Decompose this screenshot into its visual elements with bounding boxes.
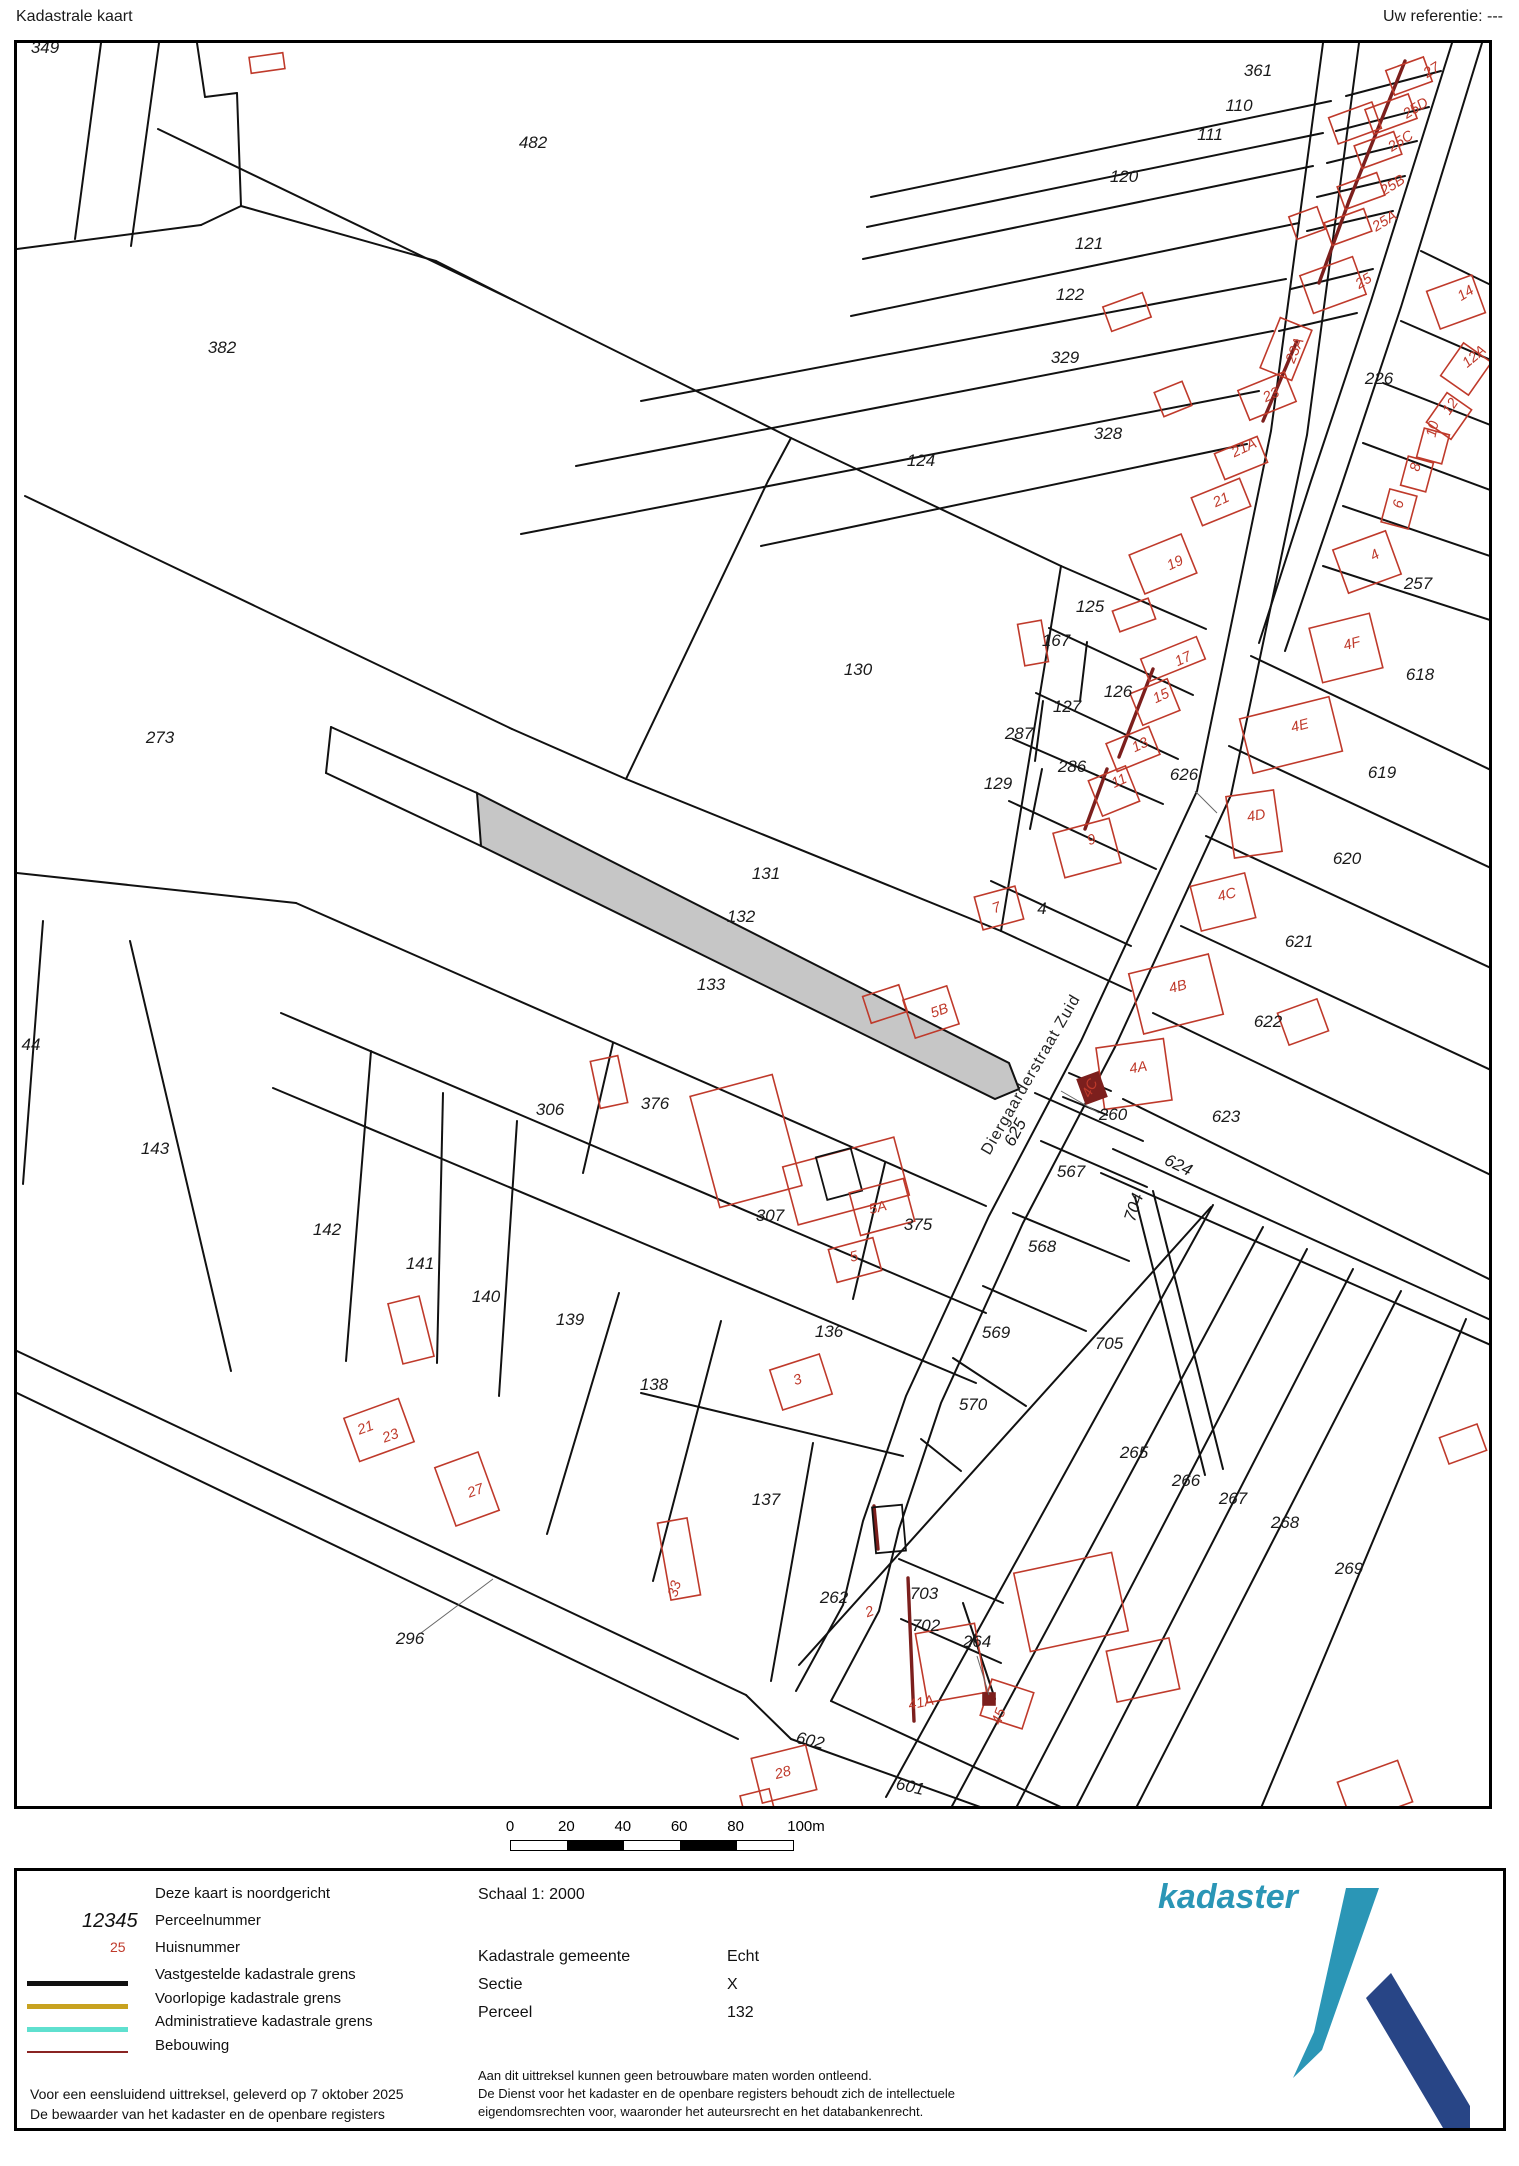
parcel-boundary — [205, 93, 237, 97]
parcel-boundary — [831, 1701, 1063, 1806]
perceel-label: Perceel — [478, 2004, 532, 2022]
parcel-label-382: 382 — [208, 338, 237, 357]
parcel-label-129: 129 — [984, 774, 1013, 793]
disclaimer-line-1: Aan dit uittreksel kunnen geen betrouwba… — [478, 2068, 872, 2083]
parcel-label-273: 273 — [145, 728, 175, 747]
parcel-label-121: 121 — [1075, 234, 1103, 253]
building-outline — [740, 1789, 774, 1806]
parcel-boundary — [241, 206, 436, 261]
scale-tick-20: 20 — [558, 1818, 575, 1835]
parcel-boundary — [626, 481, 768, 779]
scale-segment — [624, 1841, 680, 1850]
parcel-boundary — [437, 1093, 443, 1363]
parcel-label-126: 126 — [1104, 682, 1133, 701]
parcel-label-569: 569 — [982, 1323, 1011, 1342]
highlighted-parcel-132[interactable] — [477, 793, 1019, 1099]
parcel-boundary — [17, 1351, 746, 1695]
parcel-label-623: 623 — [1212, 1107, 1241, 1126]
scale-label: Schaal 1: 2000 — [478, 1886, 585, 1904]
parcel-boundary — [296, 903, 986, 1206]
house-number-7: 7 — [990, 899, 1004, 917]
legend-item-perceelnummer: Perceelnummer — [155, 1912, 261, 1929]
gemeente-value: Echt — [727, 1948, 759, 1966]
house-number-4D: 4D — [1246, 807, 1267, 826]
parcel-boundary — [653, 1321, 721, 1581]
parcel-label-328: 328 — [1094, 424, 1123, 443]
scale-segment — [680, 1841, 736, 1850]
building-outline — [1106, 1638, 1179, 1702]
house-number-33: 33 — [665, 1579, 685, 1599]
house-number-4C: 4C — [1216, 885, 1239, 905]
disclaimer-line-2: De Dienst voor het kadaster en de openba… — [478, 2086, 955, 2101]
parcel-label-44: 44 — [22, 1035, 41, 1054]
parcel-label-267: 267 — [1218, 1489, 1248, 1508]
parcel-label-264: 264 — [962, 1632, 991, 1651]
parcel-label-257: 257 — [1403, 574, 1433, 593]
house-number-3: 3 — [791, 1371, 804, 1389]
parcel-label-167: 167 — [1042, 631, 1071, 650]
parcel-boundary — [17, 1393, 738, 1739]
parcel-label-141: 141 — [406, 1254, 434, 1273]
reference-label: Uw referentie: --- — [1383, 8, 1503, 26]
parcel-label-142: 142 — [313, 1220, 342, 1239]
parcel-label-620: 620 — [1333, 849, 1362, 868]
parcel-label-143: 143 — [141, 1139, 170, 1158]
legend-line-vastgesteld — [27, 1981, 128, 1986]
parcel-boundary — [17, 873, 296, 903]
parcel-label-601: 601 — [894, 1774, 926, 1799]
parcel-label-286: 286 — [1057, 757, 1087, 776]
delivery-line: Voor een eensluidend uittreksel, gelever… — [30, 2086, 404, 2102]
parcel-label-133: 133 — [697, 975, 726, 994]
parcel-label-260: 260 — [1098, 1105, 1128, 1124]
house-number-25A: 25A — [1369, 208, 1400, 236]
building-outline — [1333, 531, 1401, 593]
parcel-boundary — [158, 129, 515, 301]
scale-tick-0: 0 — [506, 1818, 514, 1835]
cadastral-map[interactable]: 3494823821243611101111201211223293282262… — [17, 43, 1489, 1806]
parcel-label-138: 138 — [640, 1375, 669, 1394]
scale-tick-80: 80 — [727, 1818, 744, 1835]
house-number-4A: 4A — [1128, 1059, 1148, 1078]
house-number-4F: 4F — [1342, 634, 1364, 654]
building-outline — [1112, 598, 1155, 632]
parcel-boundary — [1261, 1319, 1466, 1806]
scale-segment — [737, 1841, 793, 1850]
house-number-2: 2 — [862, 1603, 876, 1621]
house-number-41A: 41A — [907, 1693, 936, 1714]
parcel-boundary — [1363, 443, 1489, 491]
parcel-boundary — [512, 729, 626, 779]
parcel-boundary — [75, 43, 101, 239]
parcel-label-307: 307 — [756, 1206, 785, 1225]
legend-line-administratief — [27, 2027, 128, 2032]
parcel-boundary — [1001, 931, 1131, 991]
parcel-boundary — [17, 225, 201, 249]
parcel-boundary — [1153, 1013, 1489, 1176]
parcel-label-131: 131 — [752, 864, 780, 883]
parcel-boundary — [326, 727, 331, 773]
house-number-21: 21 — [354, 1418, 376, 1439]
parcel-boundary — [1009, 801, 1156, 869]
house-number-23: 23 — [379, 1426, 401, 1447]
parcel-label-226: 226 — [1364, 369, 1394, 388]
sectie-value: X — [727, 1976, 738, 1994]
parcel-label-268: 268 — [1270, 1513, 1300, 1532]
parcel-boundary — [746, 1695, 791, 1739]
page-title: Kadastrale kaart — [16, 8, 133, 26]
bebouwing-boundary — [1319, 201, 1349, 283]
gemeente-label: Kadastrale gemeente — [478, 1948, 630, 1966]
parcel-boundary — [1001, 566, 1061, 931]
kadastrale-kaart-page: Kadastrale kaart Uw referentie: --- 3494… — [0, 0, 1519, 2166]
parcel-label-136: 136 — [815, 1322, 844, 1341]
scale-segment — [567, 1841, 623, 1850]
house-number-5B: 5B — [929, 1001, 951, 1022]
house-number-17: 17 — [1173, 648, 1195, 670]
building-outline — [1277, 999, 1328, 1045]
building-outline — [388, 1296, 434, 1364]
parcel-label-482: 482 — [519, 133, 548, 152]
legend-item-vastgesteld: Vastgestelde kadastrale grens — [155, 1966, 356, 1983]
legend-line-bebouwing — [27, 2051, 128, 2053]
scale-tick-40: 40 — [614, 1818, 631, 1835]
scale-bar-ruler — [510, 1840, 794, 1851]
building-outline — [1401, 456, 1434, 492]
scale-segment — [511, 1841, 567, 1850]
house-number-14: 14 — [1455, 283, 1477, 305]
house-number-6: 6 — [1390, 498, 1408, 510]
parcel-label-622: 622 — [1254, 1012, 1283, 1031]
parcel-label-361: 361 — [1244, 61, 1272, 80]
parcel-label-110: 110 — [1225, 96, 1253, 115]
house-number-5: 5 — [848, 1248, 861, 1266]
house-number-19: 19 — [1165, 553, 1186, 574]
building-outline — [690, 1074, 802, 1207]
legend-item-bebouwing: Bebouwing — [155, 2037, 229, 2054]
parcel-label-567: 567 — [1057, 1162, 1086, 1181]
house-number-15: 15 — [1151, 685, 1173, 707]
road-edge — [1259, 43, 1452, 643]
parcel-label-140: 140 — [472, 1287, 501, 1306]
parcel-boundary — [1030, 769, 1042, 829]
parcel-label-262: 262 — [819, 1588, 849, 1607]
parcel-label-349: 349 — [31, 43, 60, 57]
parcel-label-306: 306 — [536, 1100, 565, 1119]
parcel-label-376: 376 — [641, 1094, 670, 1113]
parcel-boundary — [641, 1393, 903, 1456]
house-number-4B: 4B — [1167, 977, 1189, 997]
legend-parcelnumber-sample: 12345 — [82, 1910, 138, 1933]
parcel-label-4: 4 — [1037, 899, 1046, 918]
parcel-boundary — [1101, 1173, 1489, 1346]
parcel-label-570: 570 — [959, 1395, 988, 1414]
parcel-label-705: 705 — [1095, 1334, 1124, 1353]
parcel-boundary — [871, 101, 1331, 197]
parcel-label-602: 602 — [794, 1728, 826, 1753]
parcel-label-124: 124 — [907, 451, 935, 470]
scale-tick-60: 60 — [671, 1818, 688, 1835]
parcel-label-127: 127 — [1053, 697, 1082, 716]
legend-item-voorlopig: Voorlopige kadastrale grens — [155, 1990, 341, 2007]
parcel-boundary — [499, 1121, 517, 1396]
parcel-label-704: 704 — [1120, 1191, 1147, 1224]
parcel-label-125: 125 — [1076, 597, 1105, 616]
parcel-boundary — [576, 331, 1273, 466]
parcel-label-139: 139 — [556, 1310, 585, 1329]
building-outline — [344, 1398, 414, 1461]
parcel-boundary — [1343, 506, 1489, 557]
parcel-label-329: 329 — [1051, 348, 1080, 367]
legend-line-voorlopig — [27, 2004, 128, 2009]
house-number-8: 8 — [1407, 462, 1424, 473]
parcel-boundary — [771, 1443, 813, 1681]
house-number-21A: 21A — [1228, 436, 1259, 462]
perceel-value: 132 — [727, 2004, 754, 2022]
building-outline — [1154, 381, 1192, 416]
parcel-boundary — [331, 727, 477, 793]
parcel-label-296: 296 — [395, 1629, 425, 1648]
parcel-boundary — [1080, 642, 1087, 701]
parcel-label-265: 265 — [1119, 1443, 1149, 1462]
building-outline — [783, 1137, 910, 1225]
map-frame: 3494823821243611101111201211223293282262… — [14, 40, 1492, 1809]
parcel-boundary — [131, 43, 159, 246]
road-edge — [831, 43, 1359, 1701]
parcel-label-266: 266 — [1171, 1471, 1201, 1490]
building-outline — [1427, 275, 1486, 329]
parcel-boundary — [201, 206, 241, 225]
house-number-4: 4 — [1368, 547, 1383, 565]
legend-item-noordgericht: Deze kaart is noordgericht — [155, 1885, 330, 1902]
parcel-label-624: 624 — [1161, 1150, 1195, 1180]
parcel-label-137: 137 — [752, 1490, 781, 1509]
parcel-label-120: 120 — [1110, 167, 1139, 186]
parcel-label-130: 130 — [844, 660, 873, 679]
parcel-label-132: 132 — [727, 907, 756, 926]
parcel-label-111: 111 — [1197, 125, 1223, 144]
parcel-boundary — [1016, 1249, 1307, 1806]
parcel-boundary — [583, 1043, 613, 1173]
parcel-label-568: 568 — [1028, 1237, 1057, 1256]
legend-housenumber-sample: 25 — [110, 1939, 126, 1955]
parcel-boundary — [1123, 1099, 1489, 1281]
building-outline — [249, 53, 285, 74]
building-outline — [1439, 1424, 1486, 1464]
parcel-label-287: 287 — [1004, 724, 1034, 743]
parcel-boundary — [515, 301, 791, 438]
sectie-label: Sectie — [478, 1976, 522, 1994]
building-outline — [1014, 1552, 1128, 1651]
parcel-label-122: 122 — [1056, 285, 1085, 304]
house-number-4E: 4E — [1289, 716, 1311, 736]
house-number-27: 27 — [464, 1481, 486, 1502]
label-leader-line — [421, 1579, 493, 1633]
kadaster-logo-wordmark: kadaster — [1158, 1878, 1298, 1917]
parcel-boundary — [547, 1293, 619, 1534]
scale-tick-100m: 100m — [787, 1818, 825, 1835]
parcel-boundary — [197, 43, 205, 97]
parcel-label-702: 702 — [912, 1616, 941, 1635]
parcel-boundary — [1251, 656, 1489, 771]
parcel-label-703: 703 — [910, 1584, 939, 1603]
parcel-boundary — [346, 1051, 371, 1361]
building-outline — [1337, 1760, 1412, 1806]
parcel-boundary — [273, 1088, 976, 1383]
parcel-boundary — [521, 391, 1259, 534]
building-outline — [1324, 209, 1372, 246]
legend-item-huisnummer: Huisnummer — [155, 1939, 240, 1956]
parcel-label-269: 269 — [1334, 1559, 1364, 1578]
parcel-boundary — [1113, 1149, 1489, 1321]
parcel-boundary — [768, 438, 791, 481]
keeper-line: De bewaarder van het kadaster en de open… — [30, 2106, 385, 2122]
house-number-12A: 12A — [1459, 343, 1489, 372]
parcel-boundary — [867, 133, 1323, 227]
house-number-21: 21 — [1210, 490, 1232, 512]
parcel-boundary — [1136, 1291, 1401, 1806]
building-outline — [1240, 697, 1343, 774]
label-leader-line — [1195, 791, 1217, 813]
parcel-label-626: 626 — [1170, 765, 1199, 784]
parcel-label-621: 621 — [1285, 932, 1313, 951]
parcel-label-375: 375 — [904, 1215, 933, 1234]
legend-item-administratief: Administratieve kadastrale grens — [155, 2013, 373, 2030]
parcel-label-619: 619 — [1368, 763, 1397, 782]
parcel-label-618: 618 — [1406, 665, 1435, 684]
building-outline — [1129, 534, 1197, 594]
parcel-boundary — [25, 496, 512, 729]
house-number-28: 28 — [772, 1763, 793, 1783]
parcel-boundary — [641, 279, 1286, 401]
parcel-boundary — [237, 93, 241, 206]
disclaimer-line-3: eigendomsrechten voor, waaronder het aut… — [478, 2104, 923, 2119]
house-number-10: 10 — [1424, 420, 1443, 439]
